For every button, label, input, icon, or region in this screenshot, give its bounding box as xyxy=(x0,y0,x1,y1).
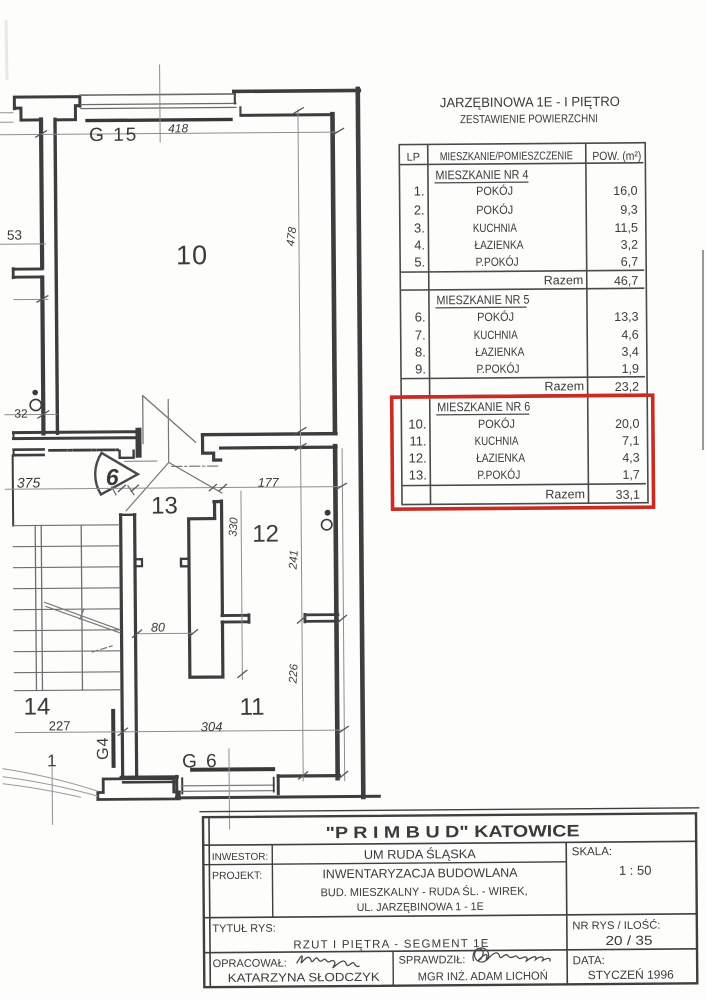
svg-text:46,7: 46,7 xyxy=(614,274,638,288)
svg-text:Razem: Razem xyxy=(544,273,584,287)
svg-text:MIESZKANIE/POMIESZCZENIE: MIESZKANIE/POMIESZCZENIE xyxy=(440,150,573,163)
svg-text:23,2: 23,2 xyxy=(615,380,639,394)
svg-text:UM RUDA ŚLĄSKA: UM RUDA ŚLĄSKA xyxy=(364,846,477,862)
svg-text:9,3: 9,3 xyxy=(620,203,638,217)
svg-text:DATA:: DATA: xyxy=(573,955,605,967)
svg-text:16,0: 16,0 xyxy=(613,184,637,198)
svg-text:11,5: 11,5 xyxy=(614,221,638,235)
svg-text:330: 330 xyxy=(227,517,240,537)
svg-text:32: 32 xyxy=(14,407,28,421)
svg-text:5.: 5. xyxy=(414,254,425,269)
svg-text:1,7: 1,7 xyxy=(622,468,640,482)
svg-text:53: 53 xyxy=(7,228,22,243)
svg-text:2.: 2. xyxy=(414,202,425,217)
svg-text:INWENTARYZACJA BUDOWLANA: INWENTARYZACJA BUDOWLANA xyxy=(322,866,518,882)
svg-text:6.: 6. xyxy=(415,309,426,324)
svg-text:304: 304 xyxy=(201,719,223,734)
svg-text:227: 227 xyxy=(49,718,71,733)
svg-text:13.: 13. xyxy=(409,467,427,482)
svg-text:POKÓJ: POKÓJ xyxy=(476,183,513,198)
svg-text:33,1: 33,1 xyxy=(616,488,640,502)
svg-text:12.: 12. xyxy=(409,450,427,465)
svg-text:4,6: 4,6 xyxy=(621,328,639,342)
svg-text:8.: 8. xyxy=(415,344,426,359)
svg-text:STYCZEŃ 1996: STYCZEŃ 1996 xyxy=(588,966,674,982)
svg-text:JARZĘBINOWA 1E - I PIĘTRO: JARZĘBINOWA 1E - I PIĘTRO xyxy=(440,94,620,110)
svg-text:11.: 11. xyxy=(409,433,426,448)
svg-text:KUCHNIA: KUCHNIA xyxy=(474,328,518,342)
svg-text:10: 10 xyxy=(176,240,208,270)
svg-text:14: 14 xyxy=(24,693,51,720)
svg-text:1,9: 1,9 xyxy=(622,362,640,376)
svg-text:UL. JARZĘBINOWA 1 - 1E: UL. JARZĘBINOWA 1 - 1E xyxy=(357,901,484,914)
svg-text:KUCHNIA: KUCHNIA xyxy=(474,434,518,448)
svg-text:ŁAZIENKA: ŁAZIENKA xyxy=(475,345,524,359)
svg-text:ŁAZIENKA: ŁAZIENKA xyxy=(476,451,525,465)
svg-text:POW. (m²): POW. (m²) xyxy=(592,149,641,163)
svg-text:P.POKÓJ: P.POKÓJ xyxy=(477,467,520,482)
svg-text:PROJEKT:: PROJEKT: xyxy=(212,870,262,882)
svg-text:13: 13 xyxy=(151,492,178,519)
svg-text:177: 177 xyxy=(258,476,280,490)
svg-text:P.POKÓJ: P.POKÓJ xyxy=(476,254,519,269)
svg-text:G 15: G 15 xyxy=(89,125,138,146)
svg-text:KATARZYNA SŁODCZYK: KATARZYNA SŁODCZYK xyxy=(228,970,380,985)
svg-text:80: 80 xyxy=(151,620,165,634)
svg-text:418: 418 xyxy=(168,121,188,135)
svg-text:3,2: 3,2 xyxy=(621,238,639,252)
svg-text:478: 478 xyxy=(285,226,299,247)
svg-text:1.: 1. xyxy=(414,183,425,198)
svg-text:4,3: 4,3 xyxy=(622,451,640,465)
svg-text:G 6: G 6 xyxy=(182,751,219,772)
svg-text:TYTUŁ RYS:: TYTUŁ RYS: xyxy=(212,923,275,935)
svg-text:POKÓJ: POKÓJ xyxy=(478,416,515,431)
svg-text:20 / 35: 20 / 35 xyxy=(605,933,652,948)
svg-text:BUD. MIESZKALNY - RUDA ŚL. - W: BUD. MIESZKALNY - RUDA ŚL. - WIREK, xyxy=(321,885,528,900)
svg-text:9.: 9. xyxy=(415,361,426,376)
svg-text:INWESTOR:: INWESTOR: xyxy=(212,852,269,863)
svg-text:1 : 50: 1 : 50 xyxy=(619,863,652,878)
svg-text:7.: 7. xyxy=(415,327,426,342)
svg-text:POKÓJ: POKÓJ xyxy=(476,202,513,217)
svg-text:7,1: 7,1 xyxy=(622,434,640,448)
svg-text:20,0: 20,0 xyxy=(615,417,639,431)
svg-text:KUCHNIA: KUCHNIA xyxy=(473,221,517,235)
svg-text:NR RYS / ILOŚĆ:: NR RYS / ILOŚĆ: xyxy=(572,919,660,933)
svg-text:10.: 10. xyxy=(408,416,426,431)
svg-text:6: 6 xyxy=(106,464,119,490)
svg-text:LP: LP xyxy=(407,151,421,163)
svg-text:"P R I M B U D" KATOWICE: "P R I M B U D" KATOWICE xyxy=(326,822,580,842)
svg-text:Razem: Razem xyxy=(545,487,585,501)
svg-text:Razem: Razem xyxy=(544,379,584,393)
svg-text:OPRACOWAŁ:: OPRACOWAŁ: xyxy=(213,958,287,971)
svg-text:POKÓJ: POKÓJ xyxy=(477,309,514,324)
svg-text:3,4: 3,4 xyxy=(621,345,639,359)
svg-text:1: 1 xyxy=(47,751,57,770)
svg-text:MIESZKANIE NR 4: MIESZKANIE NR 4 xyxy=(435,168,528,183)
svg-text:MGR INŻ. ADAM LICHOŃ: MGR INŻ. ADAM LICHOŃ xyxy=(418,969,548,983)
svg-text:241: 241 xyxy=(287,550,300,571)
svg-text:3.: 3. xyxy=(414,220,425,235)
svg-text:G4: G4 xyxy=(95,737,112,760)
svg-text:MIESZKANIE NR 5: MIESZKANIE NR 5 xyxy=(436,293,529,308)
svg-text:6,7: 6,7 xyxy=(621,255,639,269)
svg-text:4.: 4. xyxy=(414,237,425,252)
svg-text:375: 375 xyxy=(17,474,41,490)
svg-text:12: 12 xyxy=(252,521,279,548)
svg-text:ZESTAWIENIE POWIERZCHNI: ZESTAWIENIE POWIERZCHNI xyxy=(460,113,598,126)
svg-text:RZUT I PIĘTRA - SEGMENT 1E: RZUT I PIĘTRA - SEGMENT 1E xyxy=(293,938,489,952)
svg-text:11: 11 xyxy=(240,694,265,721)
svg-text:MIESZKANIE NR 6: MIESZKANIE NR 6 xyxy=(437,400,530,415)
svg-text:P.POKÓJ: P.POKÓJ xyxy=(476,361,519,376)
svg-text:ŁAZIENKA: ŁAZIENKA xyxy=(474,238,523,252)
svg-text:SPRAWDZIŁ:: SPRAWDZIŁ: xyxy=(399,954,466,967)
svg-text:226: 226 xyxy=(287,663,300,684)
svg-text:13,3: 13,3 xyxy=(614,310,638,324)
svg-text:SKALA:: SKALA: xyxy=(572,846,612,858)
